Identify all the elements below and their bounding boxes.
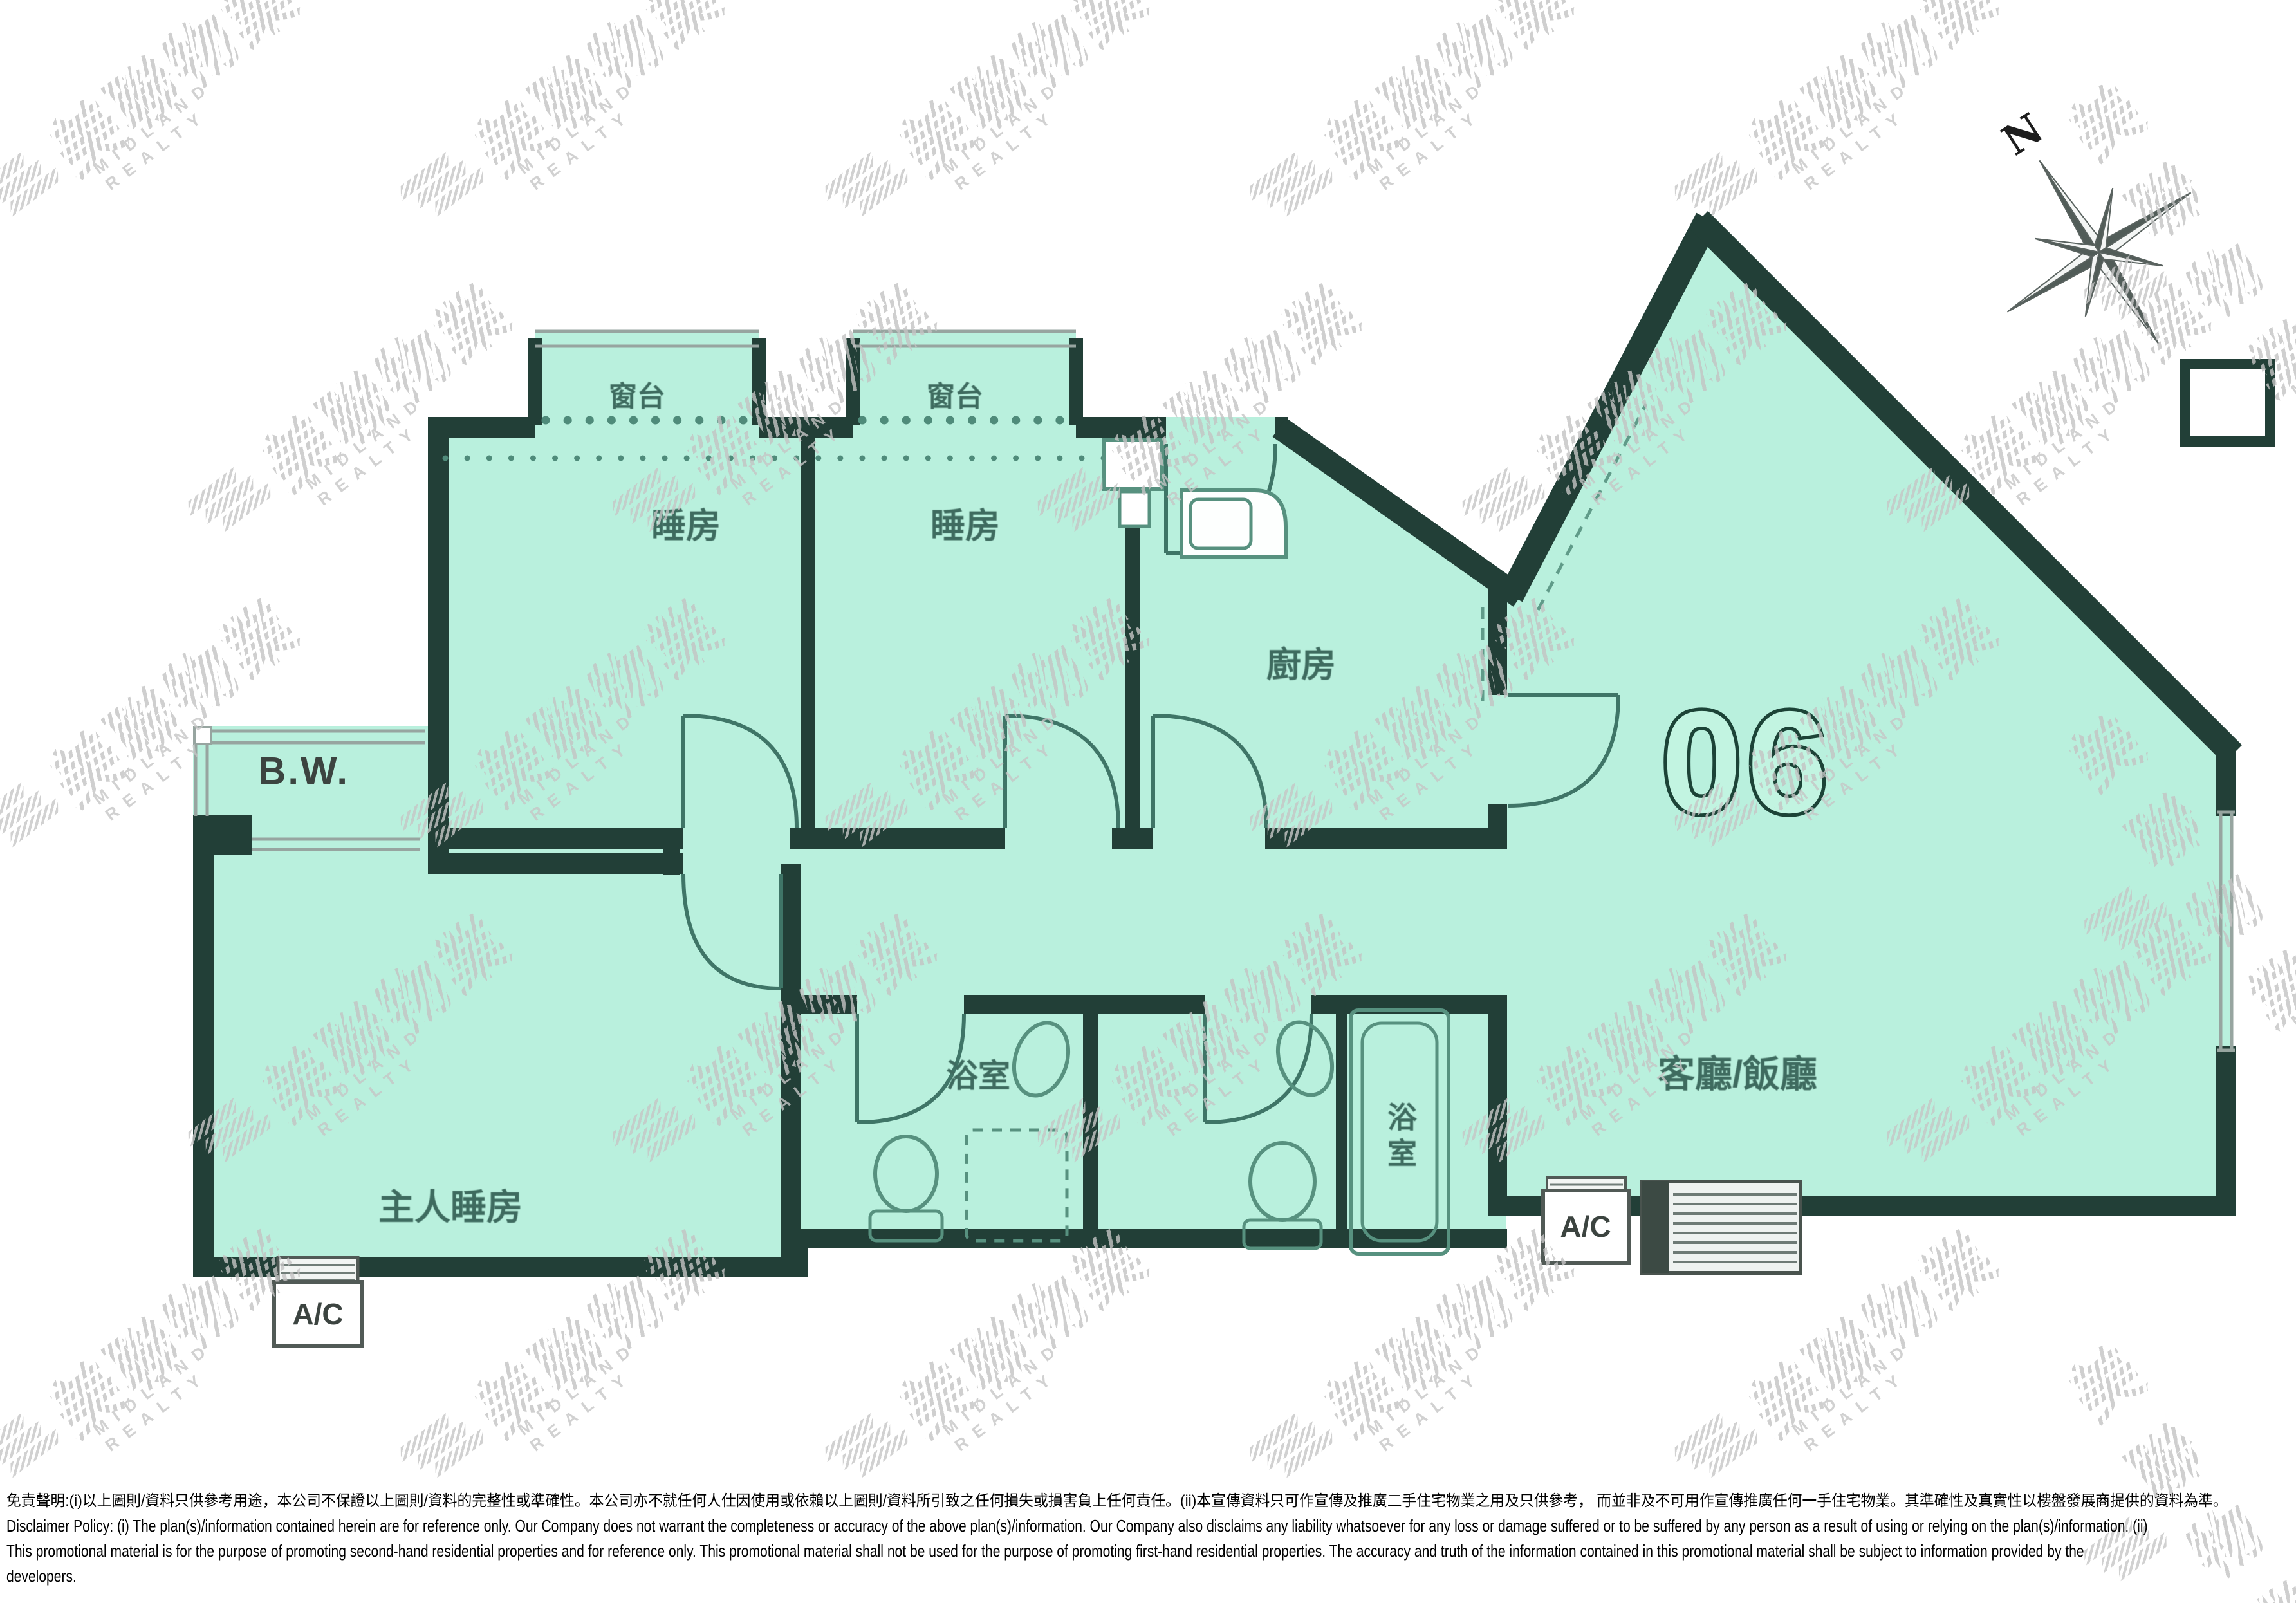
label-bathroom-1: 浴室 — [946, 1050, 1010, 1097]
unit-floor-area — [193, 216, 2233, 1277]
label-bedroom-1: 睡房 — [651, 497, 721, 548]
label-ac-right: A/C — [1560, 1209, 1611, 1244]
label-living-dining: 客廳/飯廳 — [1658, 1044, 1817, 1098]
label-bathroom-2: 浴室 — [1379, 1102, 1421, 1174]
label-bay-window-1: 窗台 — [609, 373, 665, 414]
disclaimer-line-zh: 免責聲明:(i)以上圖則/資料只供參考用途，本公司不保證以上圖則/資料的完整性或… — [6, 1489, 2296, 1514]
disclaimer-line-en-2: This promotional material is for the pur… — [6, 1539, 2148, 1564]
label-kitchen: 廚房 — [1266, 636, 1336, 687]
disclaimer-line-en-1: Disclaimer Policy: (i) The plan(s)/infor… — [6, 1514, 2148, 1539]
label-bay-window-2: 窗台 — [927, 373, 983, 414]
disclaimer-line-en-3: developers. — [6, 1564, 2148, 1589]
unit-number: 06 — [1662, 681, 1833, 843]
label-bedroom-2: 睡房 — [930, 497, 1000, 548]
floor-plan-page: 06 N 窗台 窗台 睡房 睡房 廚房 B.W. 主人睡房 浴室 浴室 客廳/飯… — [0, 0, 2296, 1603]
label-master-bedroom: 主人睡房 — [378, 1179, 523, 1231]
compass-north-label: N — [1994, 104, 2052, 165]
floor-plan-drawing: 06 N — [0, 0, 2296, 1603]
label-bay-window-left: B.W. — [258, 749, 349, 793]
label-ac-left: A/C — [292, 1297, 343, 1331]
disclaimer: 免責聲明:(i)以上圖則/資料只供參考用途，本公司不保證以上圖則/資料的完整性或… — [6, 1489, 2296, 1589]
compass-icon: N — [1918, 55, 2251, 404]
slope-notch — [2185, 364, 2270, 441]
